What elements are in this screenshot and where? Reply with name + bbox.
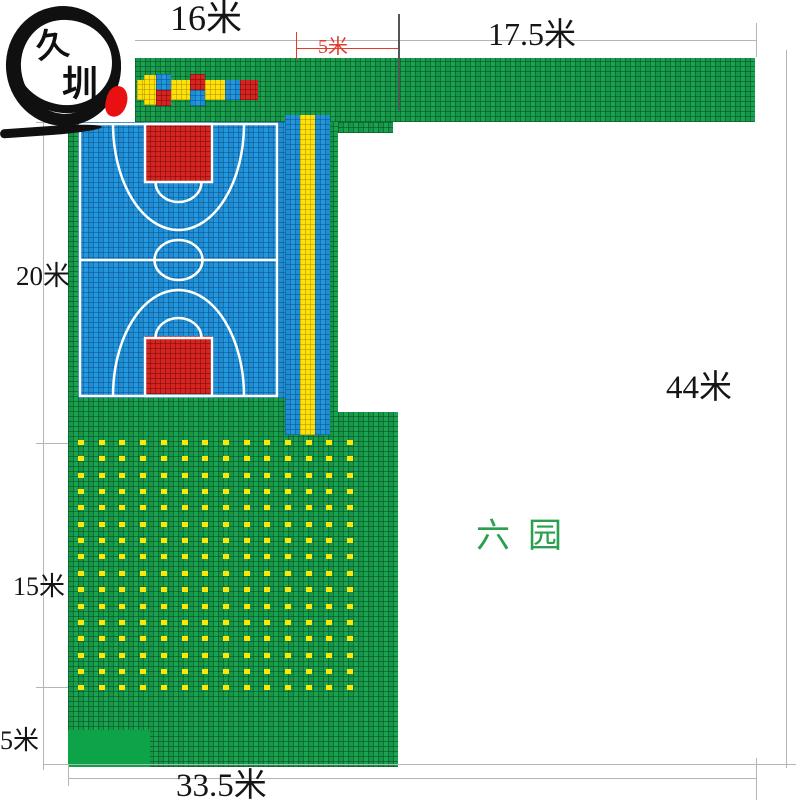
stud-dot <box>264 685 270 690</box>
walkway-strip-center <box>300 115 315 435</box>
green-step <box>338 122 393 133</box>
dim-tick-5m-red <box>296 32 297 60</box>
mosaic-block-yellow <box>171 80 190 100</box>
dim-tick-bottom-left <box>68 764 69 786</box>
stud-dot <box>223 554 229 559</box>
stud-dot <box>306 456 312 461</box>
stud-dot <box>182 620 188 625</box>
stud-dot <box>202 685 208 690</box>
stud-dot <box>306 538 312 543</box>
stud-dot <box>202 554 208 559</box>
stud-dot <box>202 505 208 510</box>
stud-dot <box>161 604 167 609</box>
stud-dot <box>244 440 250 445</box>
dim-label-15m: 15米 <box>13 574 65 600</box>
stud-dot <box>140 554 146 559</box>
stud-dot <box>161 636 167 641</box>
stud-dot <box>99 685 105 690</box>
dim-label-5m-left: 5米 <box>0 728 39 754</box>
stud-dot <box>78 571 84 576</box>
stud-dot <box>99 456 105 461</box>
stud-dot <box>140 505 146 510</box>
stud-dot <box>140 456 146 461</box>
stud-dot <box>285 604 291 609</box>
stud-dot <box>182 440 188 445</box>
stud-dot <box>326 538 332 543</box>
stud-dot <box>182 522 188 527</box>
stud-dot <box>119 653 125 658</box>
stud-dot <box>202 473 208 478</box>
mosaic-block-yellow <box>144 75 156 105</box>
dim-tick-left-mid <box>36 443 68 444</box>
solid-green-patch <box>68 730 150 767</box>
stud-dot <box>285 473 291 478</box>
stud-dot <box>99 587 105 592</box>
stud-dot <box>264 505 270 510</box>
stud-dot <box>78 620 84 625</box>
stud-dot <box>223 538 229 543</box>
brand-logo: 久 圳 <box>0 0 140 145</box>
dim-label-33-5m: 33.5米 <box>176 770 267 800</box>
stud-dot <box>223 604 229 609</box>
stud-dot <box>347 685 353 690</box>
logo-char-bottom: 圳 <box>62 66 98 102</box>
stud-dot <box>285 636 291 641</box>
stud-dot <box>119 538 125 543</box>
stud-dot <box>140 538 146 543</box>
stud-dot <box>223 636 229 641</box>
logo-brush-stroke <box>0 122 102 138</box>
stud-dot <box>244 685 250 690</box>
stud-dot <box>78 587 84 592</box>
plan-bottom-edge-line <box>43 764 796 765</box>
stud-dot <box>223 653 229 658</box>
stud-dot <box>119 489 125 494</box>
stud-dot <box>161 538 167 543</box>
stud-dot <box>140 653 146 658</box>
stud-dot <box>202 456 208 461</box>
stud-dot <box>264 522 270 527</box>
stud-dot <box>78 456 84 461</box>
stud-dot <box>99 620 105 625</box>
stud-dot <box>326 456 332 461</box>
stud-dot <box>285 685 291 690</box>
stud-dot <box>140 440 146 445</box>
stud-dot <box>202 653 208 658</box>
court-markings <box>78 122 285 398</box>
stud-dot <box>285 505 291 510</box>
stud-dot <box>78 653 84 658</box>
dim-tick-top-right <box>756 23 757 57</box>
stud-dot <box>78 440 84 445</box>
stud-dot <box>264 489 270 494</box>
stud-dot <box>223 505 229 510</box>
stud-dot <box>306 685 312 690</box>
stud-dot <box>264 669 270 674</box>
stud-dot <box>202 636 208 641</box>
stud-dot <box>244 620 250 625</box>
stud-dot <box>223 685 229 690</box>
stud-dot <box>119 620 125 625</box>
area-name-label: 六园 <box>476 520 580 554</box>
stud-dot <box>161 587 167 592</box>
stud-dot <box>182 489 188 494</box>
stud-dot <box>326 473 332 478</box>
dim-label-20m: 20米 <box>16 263 70 290</box>
stud-dot <box>161 489 167 494</box>
stud-dot <box>347 653 353 658</box>
stud-dot <box>140 604 146 609</box>
stud-dot <box>306 571 312 576</box>
stud-dot <box>182 685 188 690</box>
stud-dot <box>326 505 332 510</box>
stud-dot <box>161 685 167 690</box>
stud-dot <box>99 522 105 527</box>
stud-dot <box>264 653 270 658</box>
stud-dot <box>285 489 291 494</box>
mosaic-block-blue <box>156 74 171 90</box>
stud-dot <box>202 587 208 592</box>
stud-dot <box>244 571 250 576</box>
logo-char-top: 久 <box>34 28 71 65</box>
stud-dot <box>347 620 353 625</box>
stud-dot <box>326 440 332 445</box>
stud-dot <box>99 473 105 478</box>
stud-dot <box>119 440 125 445</box>
mosaic-block-red <box>190 74 205 90</box>
stud-dot <box>347 505 353 510</box>
stud-dot <box>264 604 270 609</box>
stud-dot <box>223 522 229 527</box>
stud-dot <box>140 685 146 690</box>
stud-dot <box>78 473 84 478</box>
stud-dot <box>99 489 105 494</box>
stud-dot <box>244 636 250 641</box>
stud-dot <box>161 456 167 461</box>
stud-dot <box>202 489 208 494</box>
stud-dot <box>244 587 250 592</box>
stud-dot <box>326 489 332 494</box>
stud-dot <box>244 538 250 543</box>
stud-dot <box>202 440 208 445</box>
stud-dot <box>306 473 312 478</box>
stud-dot <box>285 620 291 625</box>
stud-dot <box>99 653 105 658</box>
stud-dot <box>244 489 250 494</box>
stud-dot <box>78 669 84 674</box>
stud-dot <box>119 456 125 461</box>
stud-dot <box>264 440 270 445</box>
mosaic-block-blue <box>225 80 240 100</box>
dim-label-5m-red: 5米 <box>318 37 348 57</box>
stud-dot <box>306 489 312 494</box>
stud-dot <box>182 669 188 674</box>
mosaic-block-yellow <box>205 80 225 100</box>
stud-dot <box>244 505 250 510</box>
stud-dot <box>326 587 332 592</box>
stud-dot <box>140 522 146 527</box>
dim-divider-16-17 <box>398 14 400 110</box>
stud-dot <box>306 653 312 658</box>
stud-dot <box>140 571 146 576</box>
stud-dot <box>223 456 229 461</box>
stud-dot <box>264 620 270 625</box>
stud-dot <box>306 669 312 674</box>
stud-dot <box>78 604 84 609</box>
stud-dot <box>306 554 312 559</box>
stud-dot <box>140 636 146 641</box>
stud-dot <box>161 440 167 445</box>
stud-dot <box>326 620 332 625</box>
stud-dot <box>306 620 312 625</box>
stud-dot <box>119 473 125 478</box>
mosaic-block-red <box>156 90 171 106</box>
mosaic-block-blue <box>190 90 205 106</box>
stud-dot <box>223 440 229 445</box>
stud-dot <box>119 571 125 576</box>
stud-dot <box>119 669 125 674</box>
stud-dot <box>202 620 208 625</box>
stud-dot <box>326 685 332 690</box>
stud-dot <box>119 554 125 559</box>
stud-dot <box>244 604 250 609</box>
stud-dot <box>285 440 291 445</box>
site-plan-canvas: 16米 17.5米 5米 20米 44米 15米 5米 33.5米 六园 久 圳 <box>0 0 800 800</box>
stud-dot <box>99 538 105 543</box>
stud-dot <box>99 636 105 641</box>
stud-dot <box>78 636 84 641</box>
stud-dot <box>78 522 84 527</box>
stud-dot <box>244 522 250 527</box>
stud-dot <box>182 604 188 609</box>
stud-dot <box>347 473 353 478</box>
stud-dot <box>347 554 353 559</box>
stud-dot <box>223 473 229 478</box>
stud-dot <box>223 571 229 576</box>
stud-dot <box>326 554 332 559</box>
stud-dot <box>99 505 105 510</box>
stud-dot <box>182 505 188 510</box>
stud-dot <box>347 538 353 543</box>
stud-dot <box>202 522 208 527</box>
stud-dot <box>140 620 146 625</box>
mosaic-block-red <box>240 80 258 100</box>
stud-dot <box>119 636 125 641</box>
walkway-strip-right <box>315 115 330 435</box>
stud-dot <box>119 587 125 592</box>
stud-dot <box>326 604 332 609</box>
stud-dot <box>140 587 146 592</box>
stud-dot <box>244 473 250 478</box>
stud-dot <box>99 440 105 445</box>
stud-dot <box>347 587 353 592</box>
stud-dot <box>140 473 146 478</box>
stud-dot <box>161 554 167 559</box>
stud-dot <box>223 669 229 674</box>
stud-dot <box>119 604 125 609</box>
stud-dot <box>119 505 125 510</box>
stud-dot <box>306 587 312 592</box>
stud-dot <box>264 456 270 461</box>
stud-dot <box>99 571 105 576</box>
dim-line-top <box>135 40 757 41</box>
stud-dot <box>119 685 125 690</box>
dim-label-17-5m: 17.5米 <box>488 18 576 50</box>
stud-dot <box>347 522 353 527</box>
stud-dot <box>202 571 208 576</box>
stud-dot <box>78 685 84 690</box>
stud-dot <box>140 489 146 494</box>
stud-dot <box>326 653 332 658</box>
stud-dot <box>306 522 312 527</box>
dim-tick-bottom-right <box>756 758 757 800</box>
dim-line-bottom <box>68 778 757 779</box>
stud-dot <box>347 669 353 674</box>
stud-dot <box>182 571 188 576</box>
stud-dot <box>223 620 229 625</box>
stud-dot <box>285 669 291 674</box>
stud-dot <box>264 554 270 559</box>
stud-dot <box>161 669 167 674</box>
stud-dot <box>264 473 270 478</box>
stud-dot <box>285 522 291 527</box>
stud-dot <box>326 522 332 527</box>
stud-dot <box>202 669 208 674</box>
stud-dot <box>285 587 291 592</box>
stud-dot <box>78 554 84 559</box>
stud-dot <box>99 604 105 609</box>
stud-dot <box>223 489 229 494</box>
dim-label-44m: 44米 <box>666 372 732 405</box>
stud-dot <box>140 669 146 674</box>
stud-dot <box>119 522 125 527</box>
stud-dot <box>306 505 312 510</box>
stud-dot <box>182 587 188 592</box>
stud-dot <box>347 440 353 445</box>
dim-tick-left-low <box>36 687 68 688</box>
stud-dot <box>161 620 167 625</box>
stud-dot <box>78 489 84 494</box>
stud-dot <box>264 587 270 592</box>
stud-dot <box>244 456 250 461</box>
stud-dot <box>161 653 167 658</box>
stud-dot <box>347 489 353 494</box>
stud-dot <box>244 554 250 559</box>
walkway-strip-left <box>285 115 300 435</box>
stud-dot <box>182 456 188 461</box>
stud-dot <box>223 587 229 592</box>
stud-dot <box>244 653 250 658</box>
stud-dot <box>99 669 105 674</box>
stud-dot <box>285 653 291 658</box>
stud-dot <box>347 604 353 609</box>
stud-dot <box>182 653 188 658</box>
stud-dot <box>202 604 208 609</box>
stud-dot <box>264 538 270 543</box>
stud-dot <box>347 636 353 641</box>
stud-dot <box>99 554 105 559</box>
stud-dot <box>326 571 332 576</box>
stud-dot <box>347 571 353 576</box>
stud-dot <box>306 440 312 445</box>
stud-dot <box>161 571 167 576</box>
stud-dot <box>182 636 188 641</box>
stud-dot <box>285 554 291 559</box>
stud-dot <box>182 538 188 543</box>
stud-dot <box>326 636 332 641</box>
stud-dot <box>306 636 312 641</box>
dim-label-16m: 16米 <box>170 0 242 36</box>
stud-dot <box>161 522 167 527</box>
stud-dot <box>264 636 270 641</box>
stud-dot <box>202 538 208 543</box>
stud-dot <box>244 669 250 674</box>
stud-dot <box>285 538 291 543</box>
stud-dot <box>285 456 291 461</box>
dim-line-right-44m <box>786 50 787 768</box>
dim-line-left <box>43 122 44 770</box>
stud-dot <box>182 473 188 478</box>
stud-dot <box>161 505 167 510</box>
stud-dot <box>182 554 188 559</box>
stud-dot <box>306 604 312 609</box>
stud-dot <box>78 505 84 510</box>
stud-dot <box>78 538 84 543</box>
stud-dot <box>161 473 167 478</box>
stud-dot <box>326 669 332 674</box>
stud-dot <box>264 571 270 576</box>
stud-dot <box>285 571 291 576</box>
stud-dot <box>347 456 353 461</box>
